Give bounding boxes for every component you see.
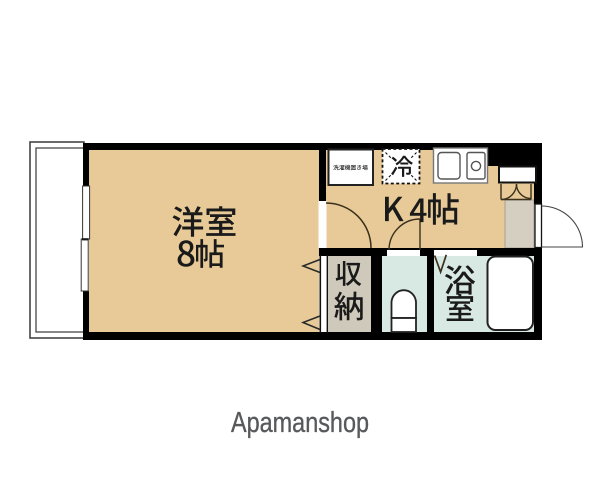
svg-text:Apamanshop: Apamanshop	[231, 407, 369, 439]
